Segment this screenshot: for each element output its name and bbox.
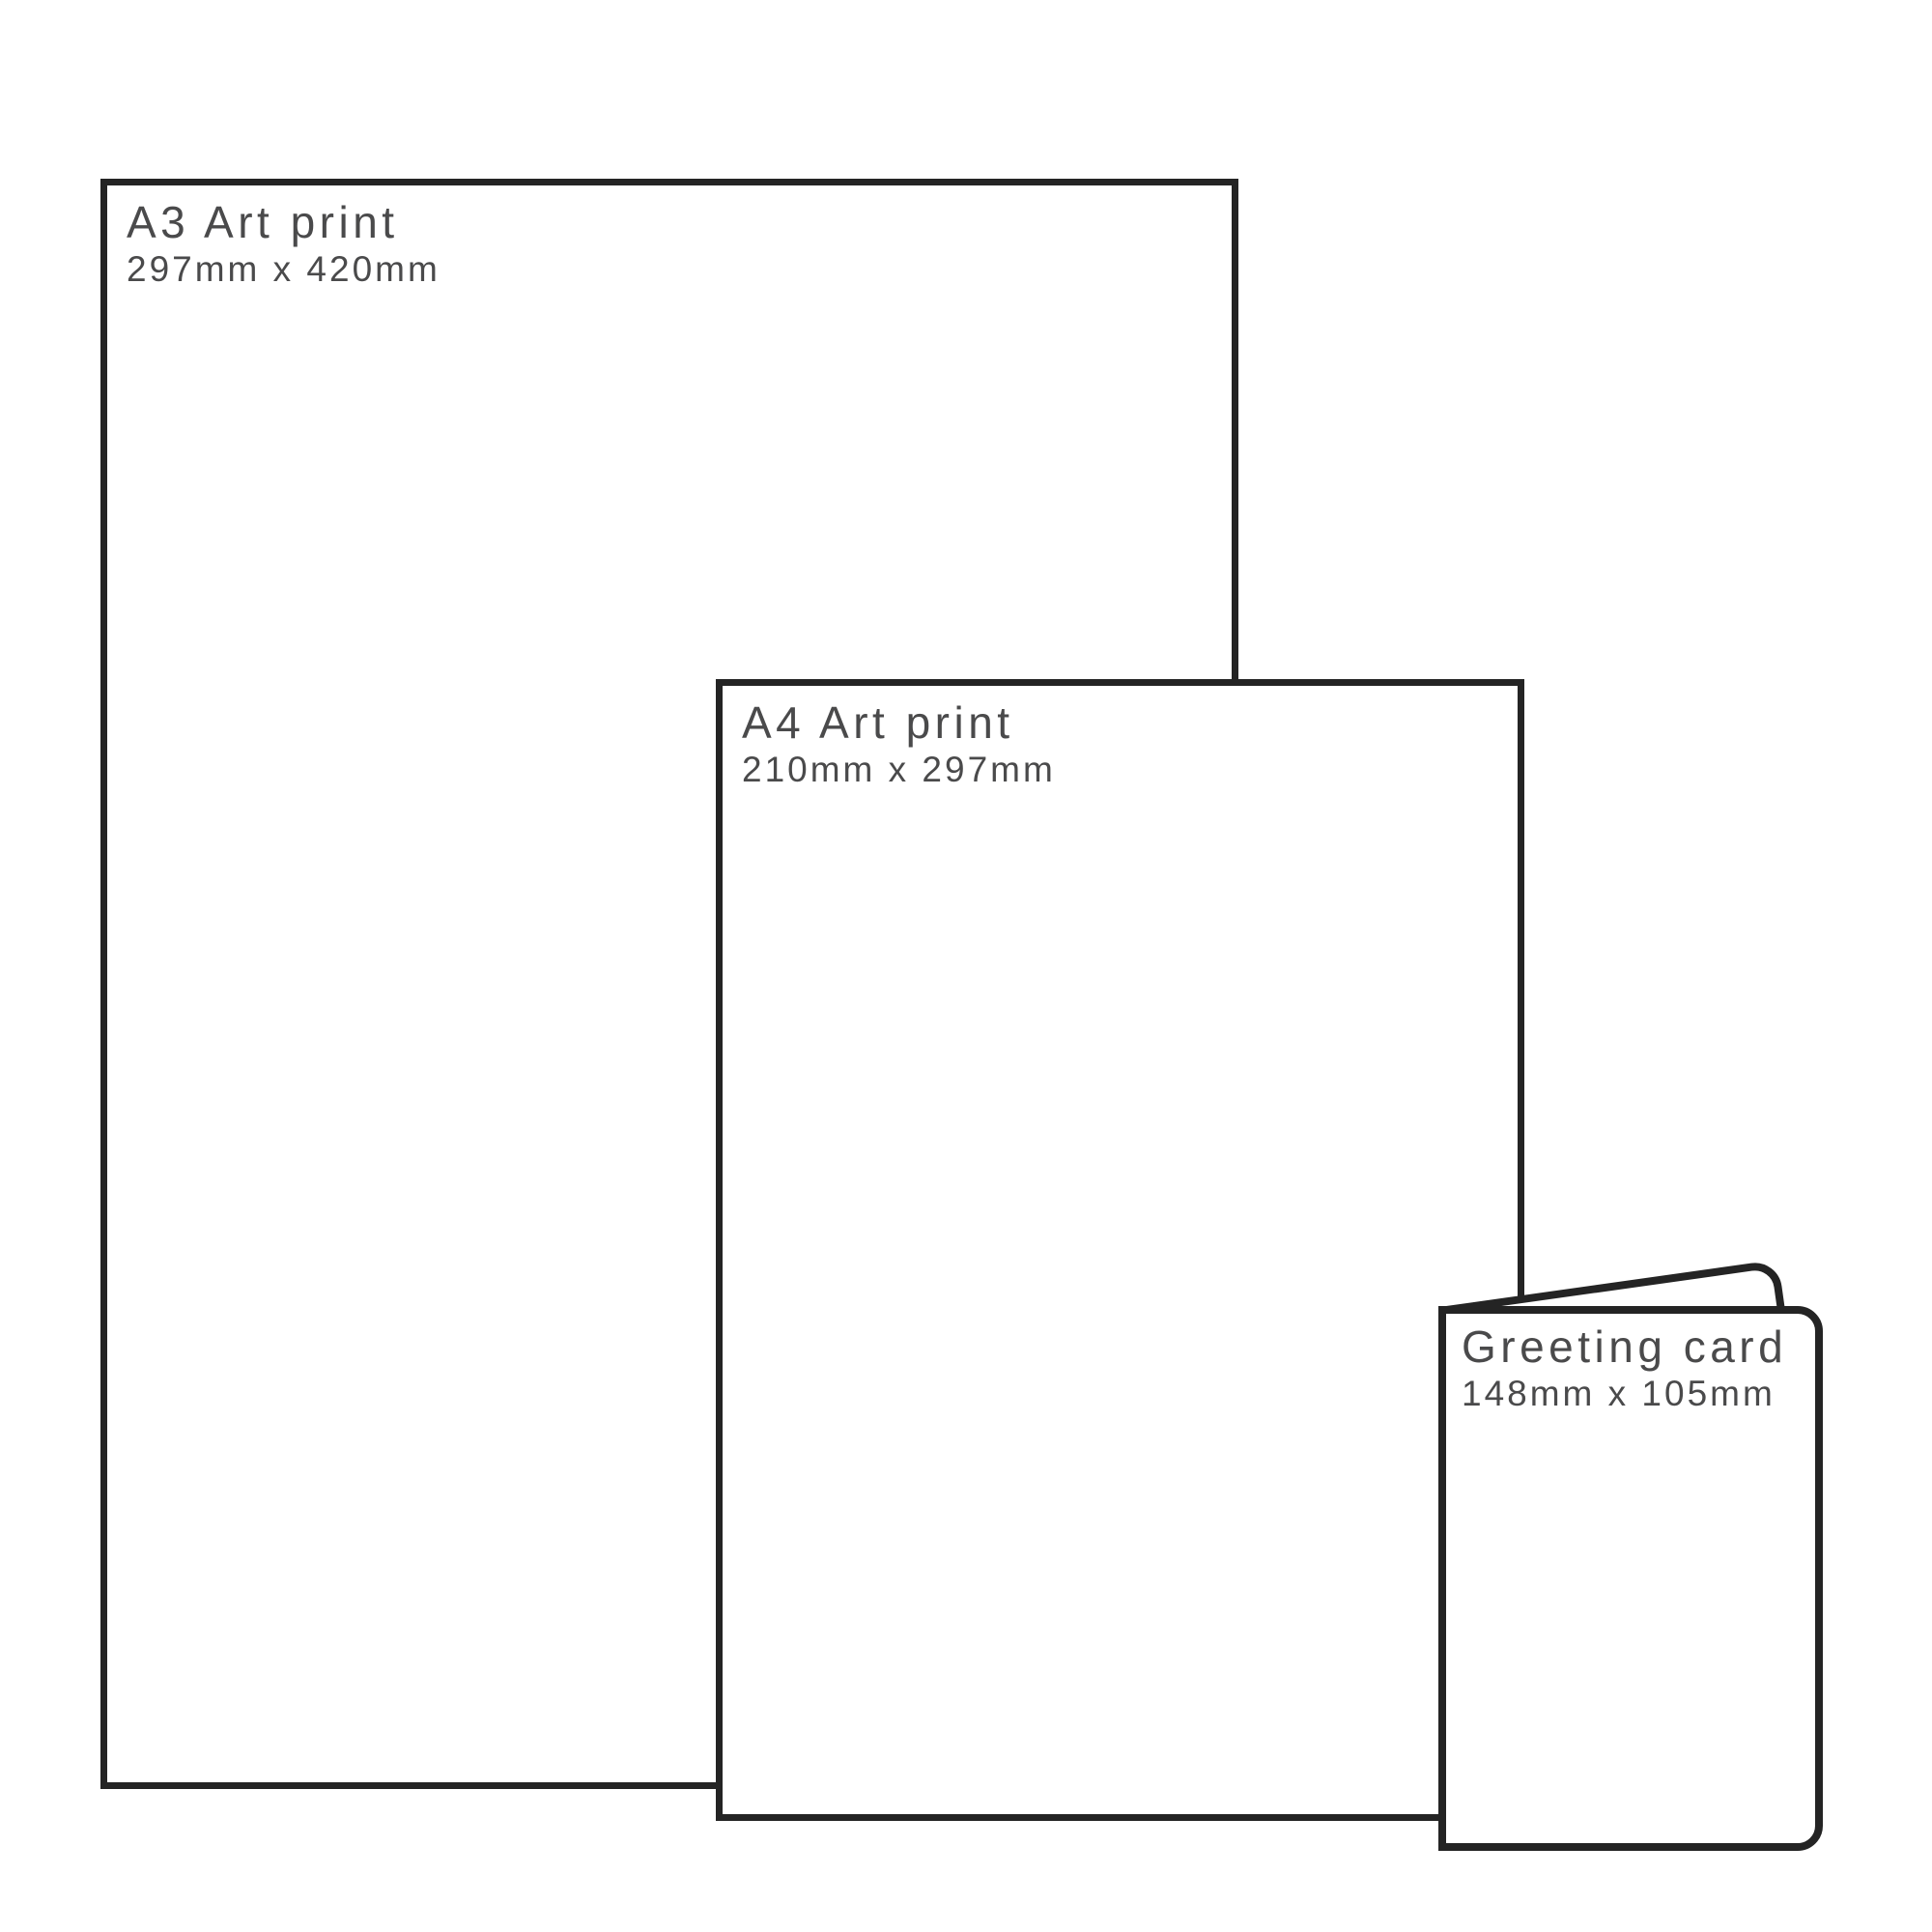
a4-art-print-outline: A4 Art print 210mm x 297mm (716, 679, 1524, 1821)
a4-art-print-dimensions: 210mm x 297mm (742, 749, 1510, 791)
print-size-comparison-diagram: A3 Art print 297mm x 420mm A4 Art print … (0, 0, 1932, 1932)
greeting-card-dimensions: 148mm x 105mm (1462, 1373, 1811, 1415)
a3-art-print-label: A3 Art print 297mm x 420mm (107, 185, 1232, 291)
a4-art-print-title: A4 Art print (742, 698, 1510, 748)
greeting-card-front-panel: Greeting card 148mm x 105mm (1438, 1306, 1823, 1851)
greeting-card-title: Greeting card (1462, 1322, 1811, 1372)
a4-art-print-label: A4 Art print 210mm x 297mm (723, 686, 1518, 791)
a3-art-print-dimensions: 297mm x 420mm (127, 248, 1224, 291)
greeting-card-label: Greeting card 148mm x 105mm (1446, 1314, 1815, 1415)
a3-art-print-title: A3 Art print (127, 198, 1224, 247)
